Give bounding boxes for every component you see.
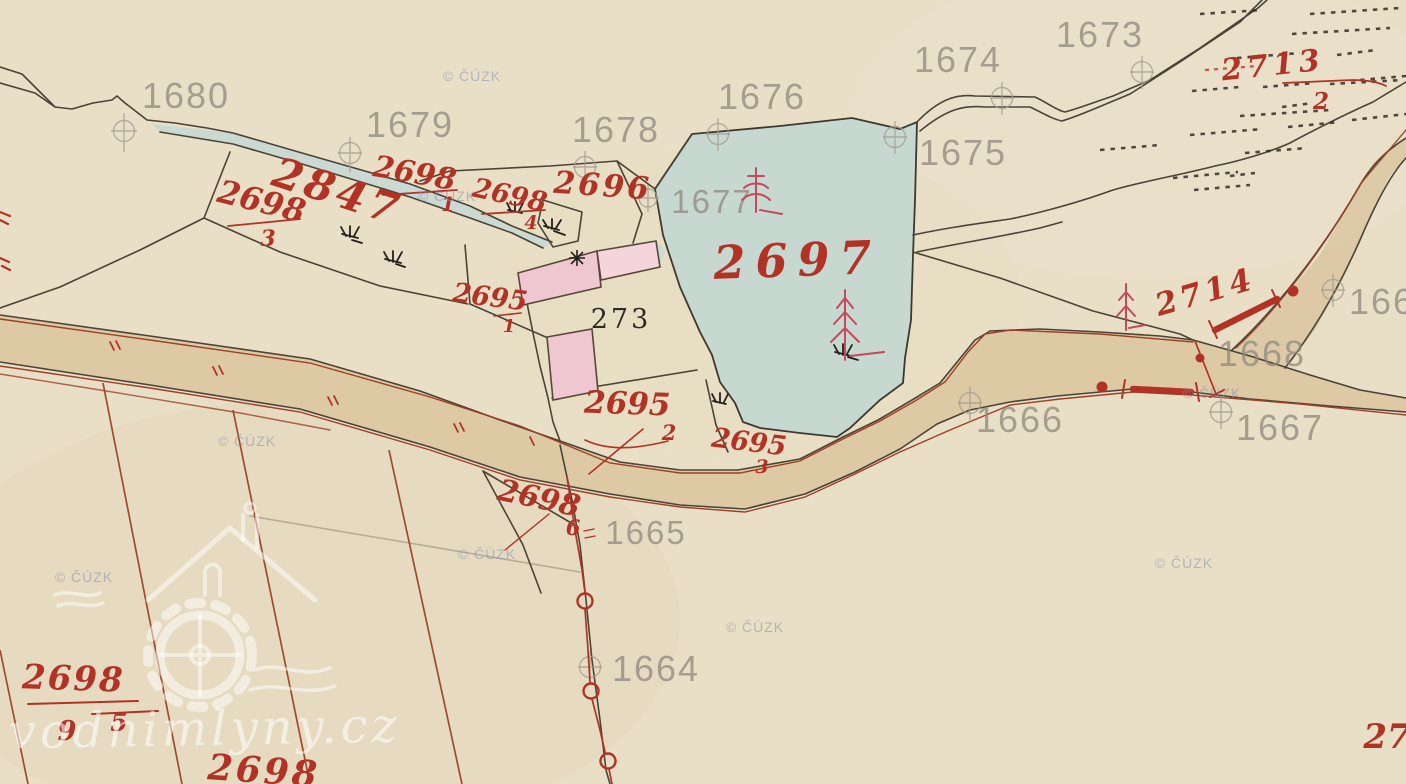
watermark-cuzk: © ČÚZK <box>1183 385 1241 401</box>
red-parcel-2698-9: 2698 <box>20 657 125 701</box>
gray-parcel-1679: 1679 <box>366 104 454 145</box>
watermark-cuzk: © ČÚZK <box>443 68 501 84</box>
cadastral-map-canvas[interactable]: 1680 1679 1678 1676 1674 1673 1675 1677 … <box>0 0 1406 784</box>
gray-parcel-1673: 1673 <box>1056 14 1144 55</box>
gray-parcel-1666: 1666 <box>976 399 1064 440</box>
red-parcel-2695-3-sub: 3 <box>755 456 768 478</box>
gray-parcel-1664: 1664 <box>612 648 700 689</box>
gray-parcel-1678: 1678 <box>572 109 660 150</box>
red-parcel-2698-4-sub: 4 <box>524 212 537 234</box>
red-parcel-2696: 2696 <box>551 165 653 208</box>
watermark-site-text: vodnimlyny.cz <box>8 698 401 761</box>
red-parcel-2695-2: 2695 <box>583 384 671 423</box>
watermark-cuzk: © ČÚZK <box>726 619 784 635</box>
gray-parcel-1674: 1674 <box>914 39 1002 80</box>
map-viewport: 1680 1679 1678 1676 1674 1673 1675 1677 … <box>0 0 1406 784</box>
gray-parcel-1665: 1665 <box>605 514 686 551</box>
gray-parcel-1668: 1668 <box>1218 333 1306 374</box>
mill-mark-icon <box>569 250 585 266</box>
red-parcel-2697: 2697 <box>712 230 883 290</box>
watermark-cuzk: © ČÚZK <box>1155 555 1213 571</box>
watermark-cuzk: © ČÚZK <box>418 188 476 204</box>
red-parcel-2713-sub: 2 <box>1312 88 1329 115</box>
gray-parcel-1680: 1680 <box>142 75 230 116</box>
gray-parcel-1669-partial: 166 <box>1349 281 1406 322</box>
red-parcel-2695-2-sub: 2 <box>661 420 677 445</box>
watermark-cuzk: © ČÚZK <box>218 433 276 449</box>
red-parcel-2695-1-sub: 1 <box>503 316 516 337</box>
watermark-cuzk: © ČÚZK <box>458 546 516 562</box>
gray-parcel-1675: 1675 <box>919 132 1007 173</box>
building-number-273: 273 <box>591 304 652 335</box>
gray-parcel-1677: 1677 <box>671 183 752 220</box>
red-parcel-2698-3-sub: 3 <box>260 226 275 252</box>
watermark-cuzk: © ČÚZK <box>55 569 113 585</box>
gray-parcel-1676: 1676 <box>718 76 806 117</box>
red-parcel-27-partial: 27 <box>1362 717 1406 757</box>
gray-parcel-1667: 1667 <box>1236 407 1324 448</box>
